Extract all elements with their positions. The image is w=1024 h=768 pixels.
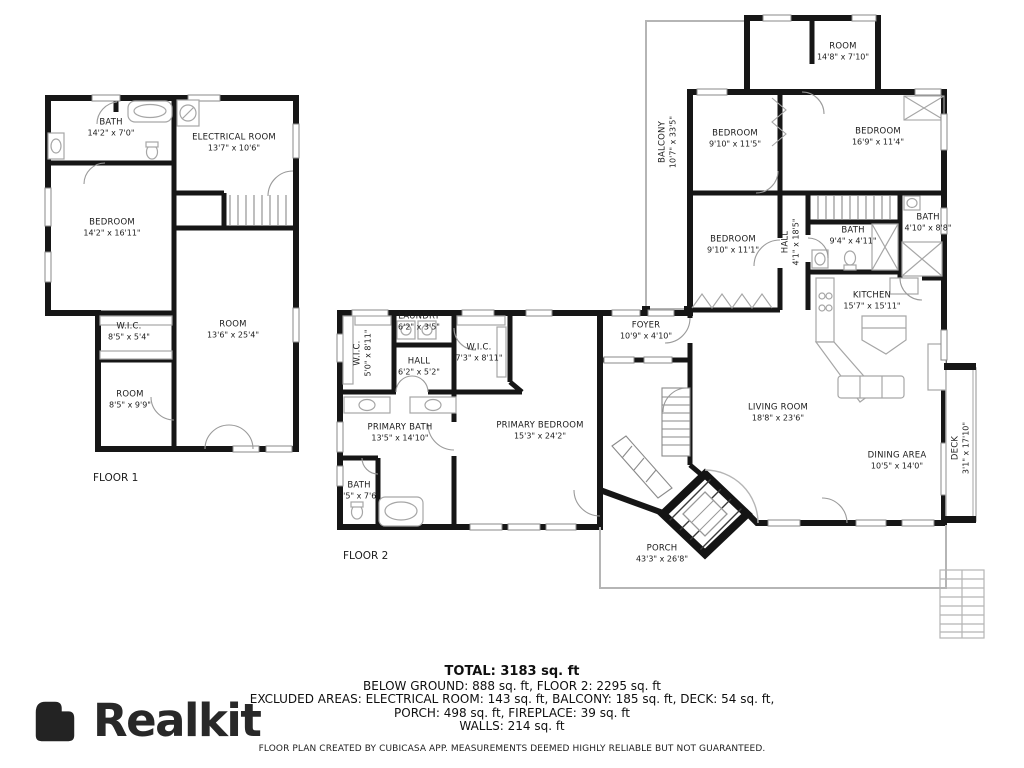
room-label-kitchen: KITCHEN 15'7" x 15'11"	[843, 290, 900, 311]
room-label-bedroom-b: BEDROOM 16'9" x 11'4"	[852, 126, 904, 147]
room-label-hall-f2: HALL 6'2" x 5'2"	[398, 356, 440, 377]
room-label-bath-f2-small: BATH 3'5" x 7'6"	[338, 480, 380, 501]
room-label-room-top: ROOM 14'8" x 7'10"	[817, 41, 869, 62]
realkit-logo-icon	[30, 695, 80, 747]
room-label-laundry: LAUNDRY 6'2" x 3'5"	[398, 311, 440, 332]
room-label-electrical-room: ELECTRICAL ROOM 13'7" x 10'6"	[192, 132, 276, 153]
room-label-balcony: BALCONY 10'7" x 33'5"	[657, 116, 678, 168]
room-label-foyer: FOYER 10'9" x 4'10"	[620, 320, 672, 341]
floor2-caption: FLOOR 2	[343, 550, 388, 562]
room-label-bath-main-2: BATH 4'10" x 8'8"	[904, 212, 951, 233]
room-label-porch: PORCH 43'3" x 26'8"	[636, 543, 688, 564]
room-label-living-room: LIVING ROOM 18'8" x 23'6"	[748, 402, 808, 423]
room-label-wic-f1: W.I.C. 8'5" x 5'4"	[108, 321, 150, 342]
room-label-bath-main-1: BATH 9'4" x 4'11"	[829, 225, 876, 246]
room-label-deck: DECK 3'1" x 17'10"	[950, 422, 971, 474]
room-label-room-f1-large: ROOM 13'6" x 25'4"	[207, 319, 259, 340]
floor1-caption: FLOOR 1	[93, 472, 138, 484]
room-label-bath-f1: BATH 14'2" x 7'0"	[87, 117, 134, 138]
summary-line-floors: BELOW GROUND: 888 sq. ft, FLOOR 2: 2295 …	[0, 680, 1024, 693]
floor-plan-drawing	[0, 0, 1024, 768]
room-label-wic-f2-right: W.I.C. 7'3" x 8'11"	[455, 342, 502, 363]
room-label-bedroom-a: BEDROOM 9'10" x 11'5"	[709, 128, 761, 149]
room-label-bedroom-f1: BEDROOM 14'2" x 16'11"	[83, 217, 140, 238]
room-label-hall-main: HALL 4'1" x 18'5"	[780, 218, 801, 265]
realkit-logo-text: Realkit	[93, 694, 260, 747]
realkit-logo: Realkit	[30, 694, 260, 747]
room-label-dining-area: DINING AREA 10'5" x 14'0"	[868, 450, 927, 471]
room-label-bedroom-c: BEDROOM 9'10" x 11'1"	[707, 234, 759, 255]
room-label-primary-bedroom: PRIMARY BEDROOM 15'3" x 24'2"	[496, 420, 583, 441]
room-label-primary-bath: PRIMARY BATH 13'5" x 14'10"	[368, 422, 433, 443]
room-label-wic-f2-left: W.I.C. 5'0" x 8'11"	[352, 329, 373, 376]
floor-plan-page: BATH 14'2" x 7'0" ELECTRICAL ROOM 13'7" …	[0, 0, 1024, 768]
summary-total: TOTAL: 3183 sq. ft	[0, 664, 1024, 679]
room-label-room-f1-small: ROOM 8'5" x 9'9"	[109, 389, 151, 410]
